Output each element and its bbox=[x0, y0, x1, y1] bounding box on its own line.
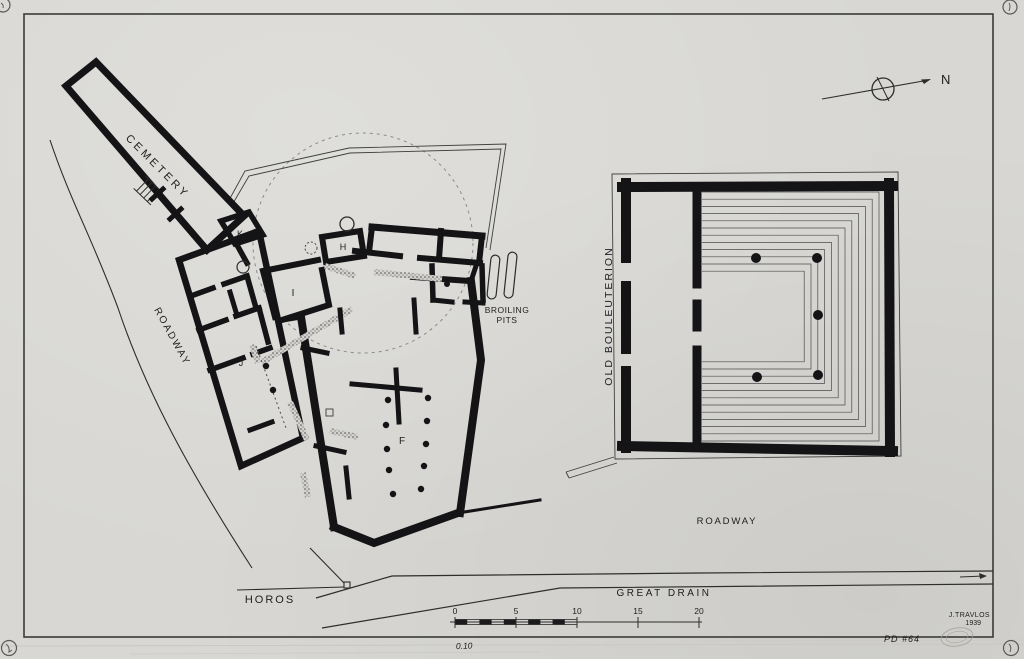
horos-marker: HOROS bbox=[237, 548, 350, 606]
punch-hole-top-left bbox=[0, 0, 10, 12]
roadway-left-label: ROADWAY bbox=[151, 306, 192, 368]
scale-tick-0: 0 bbox=[453, 606, 458, 616]
punch-hole-top-right bbox=[1003, 0, 1017, 14]
north-label: N bbox=[941, 72, 951, 87]
room-h: H bbox=[305, 217, 364, 262]
cemetery-building: CEMETERY bbox=[66, 62, 244, 250]
old-bouleuterion: OLD BOULEUTERION bbox=[566, 172, 901, 478]
scale-tick-15: 15 bbox=[633, 606, 643, 616]
signature-name: J.TRAVLOS bbox=[949, 612, 990, 619]
signature-year: 1939 bbox=[965, 620, 981, 627]
catalog-number: PD #64 bbox=[884, 634, 920, 644]
great-drain: GREAT DRAIN bbox=[316, 571, 993, 628]
punch-hole-bottom-right bbox=[1004, 641, 1019, 656]
seating-rows bbox=[702, 192, 879, 441]
bouleuterion-walls bbox=[622, 183, 893, 452]
drawing-border bbox=[0, 14, 1024, 654]
roadway-left-line bbox=[50, 140, 252, 568]
bouleuterion-ramp bbox=[566, 457, 617, 478]
room-f-label: F bbox=[399, 436, 405, 447]
pencil-note: 0.10 bbox=[456, 640, 473, 651]
room-j-label: J bbox=[239, 358, 244, 368]
scale-tick-20: 20 bbox=[694, 606, 704, 616]
broiling-pits-label-line2: PITS bbox=[497, 315, 518, 325]
drain-flow-arrow bbox=[960, 573, 987, 579]
column-base-dots bbox=[383, 395, 431, 497]
scale-tick-5: 5 bbox=[514, 606, 519, 616]
site-plan-sheet: N CEMETERY K bbox=[0, 0, 1024, 659]
room-i-label: I bbox=[292, 288, 295, 299]
broiling-pits: BROILING PITS bbox=[485, 252, 530, 325]
great-drain-label: GREAT DRAIN bbox=[617, 588, 712, 599]
horos-label: HOROS bbox=[245, 594, 295, 606]
room-h-label: H bbox=[340, 242, 347, 252]
bouleuterion-column-dots bbox=[751, 253, 823, 382]
old-bouleuterion-label: OLD BOULEUTERION bbox=[603, 246, 615, 385]
upper-central-building bbox=[355, 227, 483, 303]
punch-hole-bottom-left bbox=[2, 641, 17, 656]
roadway-bottom-label: ROADWAY bbox=[697, 516, 758, 527]
broiling-pits-label-line1: BROILING bbox=[485, 305, 530, 315]
scale-bar: 0 5 10 15 20 bbox=[450, 606, 704, 628]
signature-block: J.TRAVLOS 1939 bbox=[949, 612, 990, 627]
north-arrow: N bbox=[822, 72, 951, 101]
scale-tick-10: 10 bbox=[572, 606, 582, 616]
